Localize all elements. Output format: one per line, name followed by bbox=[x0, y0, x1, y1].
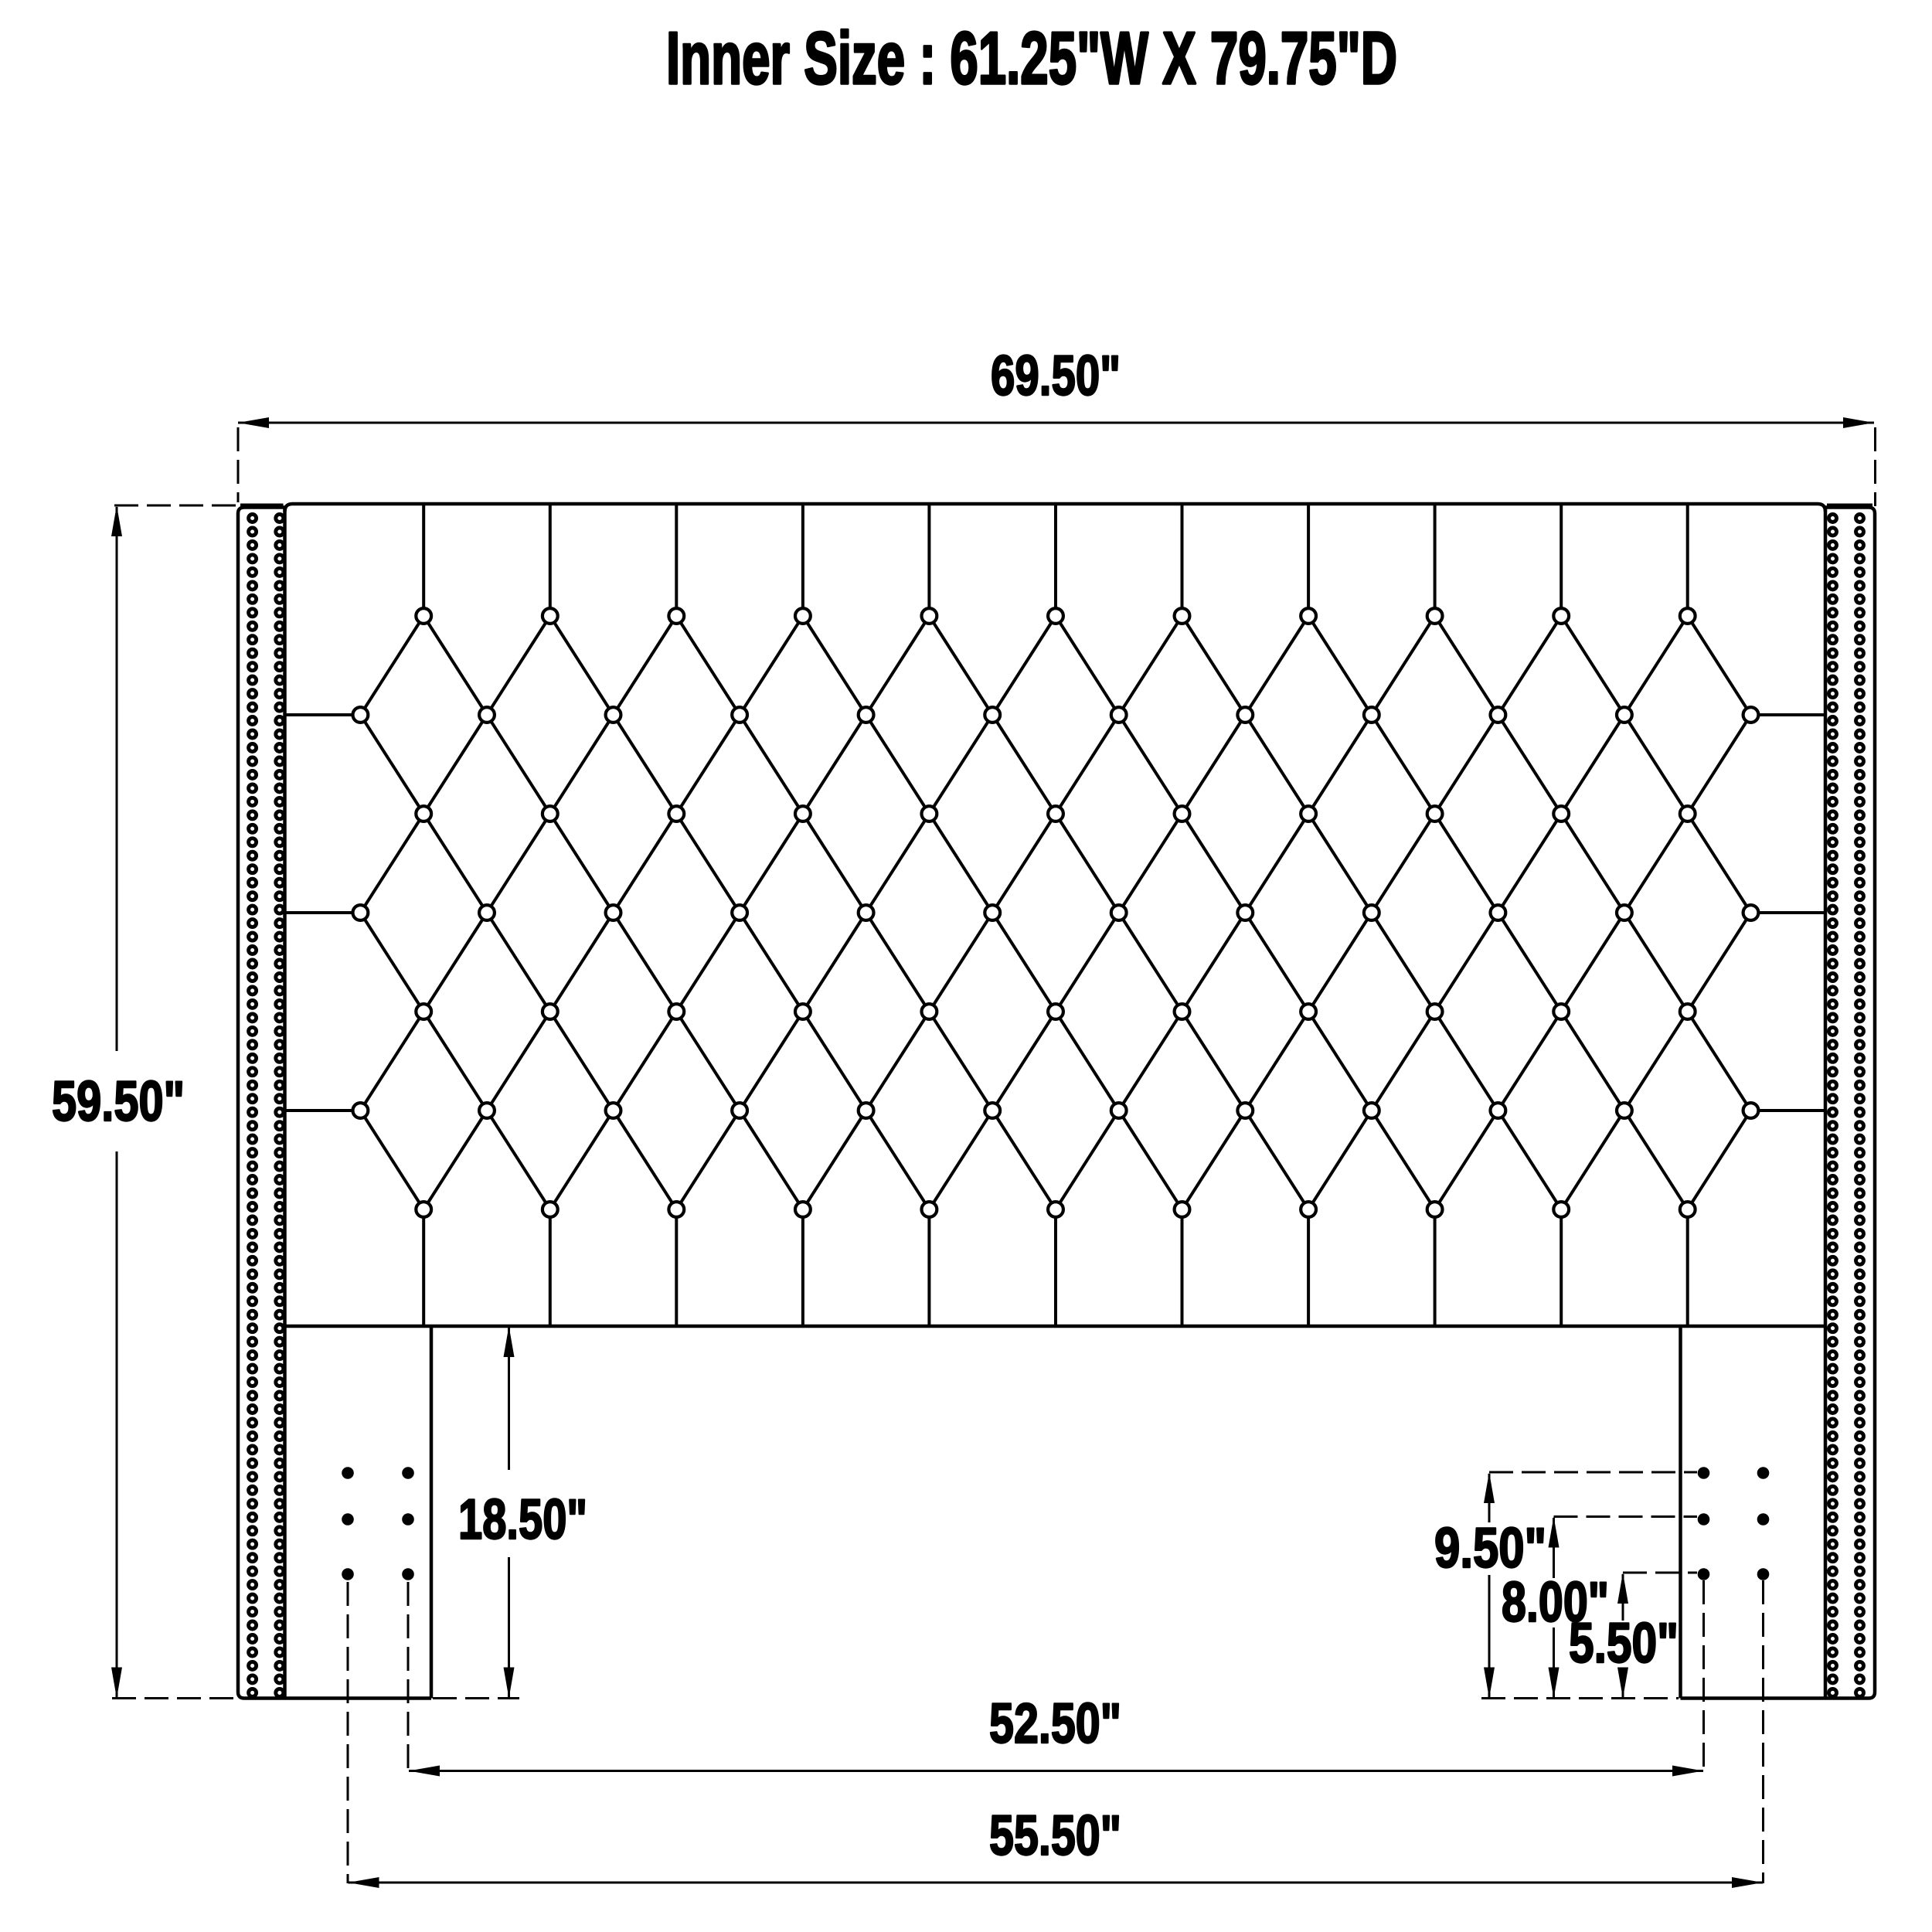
svg-text:55.50": 55.50" bbox=[989, 1804, 1121, 1867]
svg-text:9.50": 9.50" bbox=[1434, 1517, 1546, 1580]
svg-text:69.50": 69.50" bbox=[991, 345, 1121, 407]
svg-text:5.50": 5.50" bbox=[1569, 1612, 1679, 1675]
svg-text:Inner Size : 61.25"W X 79.75"D: Inner Size : 61.25"W X 79.75"D bbox=[666, 17, 1397, 100]
svg-text:52.50": 52.50" bbox=[989, 1692, 1121, 1755]
svg-text:59.50": 59.50" bbox=[52, 1070, 185, 1133]
svg-text:18.50": 18.50" bbox=[458, 1488, 587, 1551]
